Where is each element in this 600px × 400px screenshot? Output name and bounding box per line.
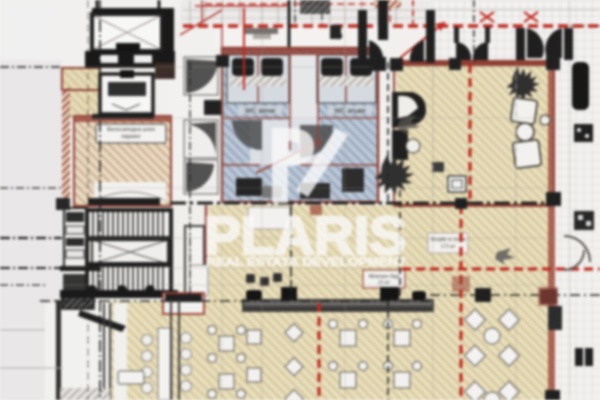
svg-text:паркинг: паркинг	[121, 134, 141, 140]
svg-text:173 м²: 173 м²	[441, 244, 456, 250]
svg-text:WC мъже: WC мъже	[334, 108, 365, 115]
svg-text:WC жени: WC жени	[245, 108, 275, 115]
svg-text:REAL ESTATE DEVELOPMENT: REAL ESTATE DEVELOPMENT	[206, 257, 406, 269]
svg-text:Велосипедна алея: Велосипедна алея	[107, 127, 155, 133]
